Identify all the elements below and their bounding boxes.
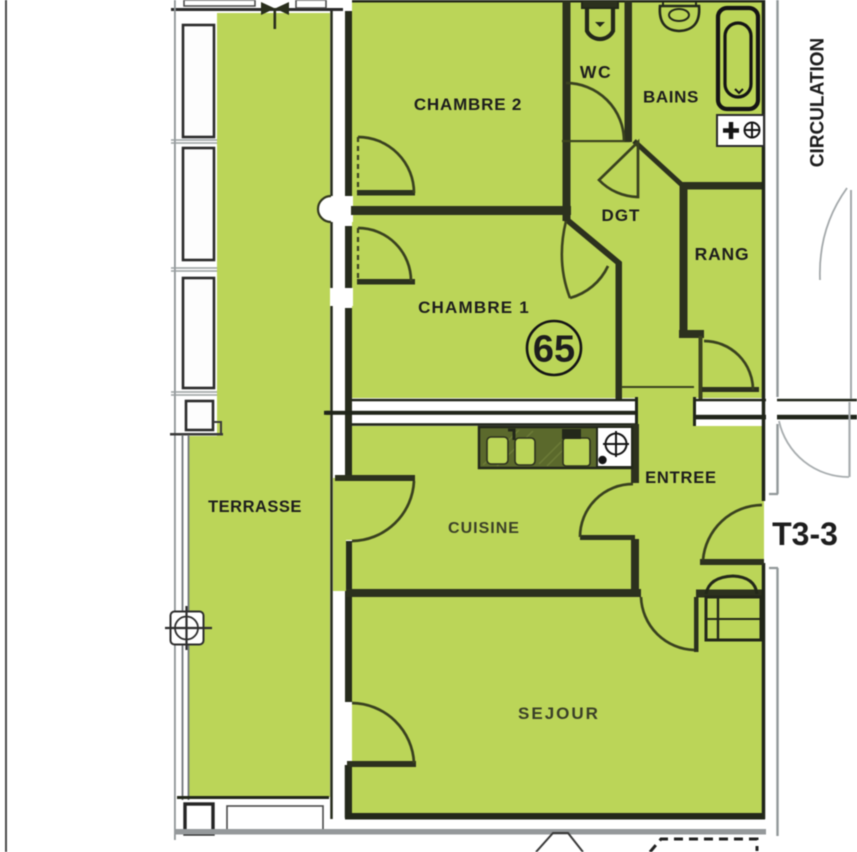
svg-text:TERRASSE: TERRASSE	[208, 498, 302, 516]
svg-text:CHAMBRE 2: CHAMBRE 2	[414, 95, 522, 114]
svg-text:BAINS: BAINS	[643, 88, 699, 107]
svg-text:WC: WC	[580, 62, 612, 82]
svg-text:CIRCULATION: CIRCULATION	[808, 38, 829, 167]
svg-text:RANG: RANG	[695, 244, 750, 264]
svg-text:T3-3: T3-3	[772, 516, 838, 552]
svg-text:65: 65	[533, 329, 575, 371]
svg-text:SEJOUR: SEJOUR	[518, 704, 600, 723]
svg-text:CHAMBRE 1: CHAMBRE 1	[418, 298, 530, 317]
svg-text:CUISINE: CUISINE	[448, 520, 520, 537]
svg-text:ENTREE: ENTREE	[645, 469, 717, 487]
svg-text:DGT: DGT	[602, 206, 641, 225]
